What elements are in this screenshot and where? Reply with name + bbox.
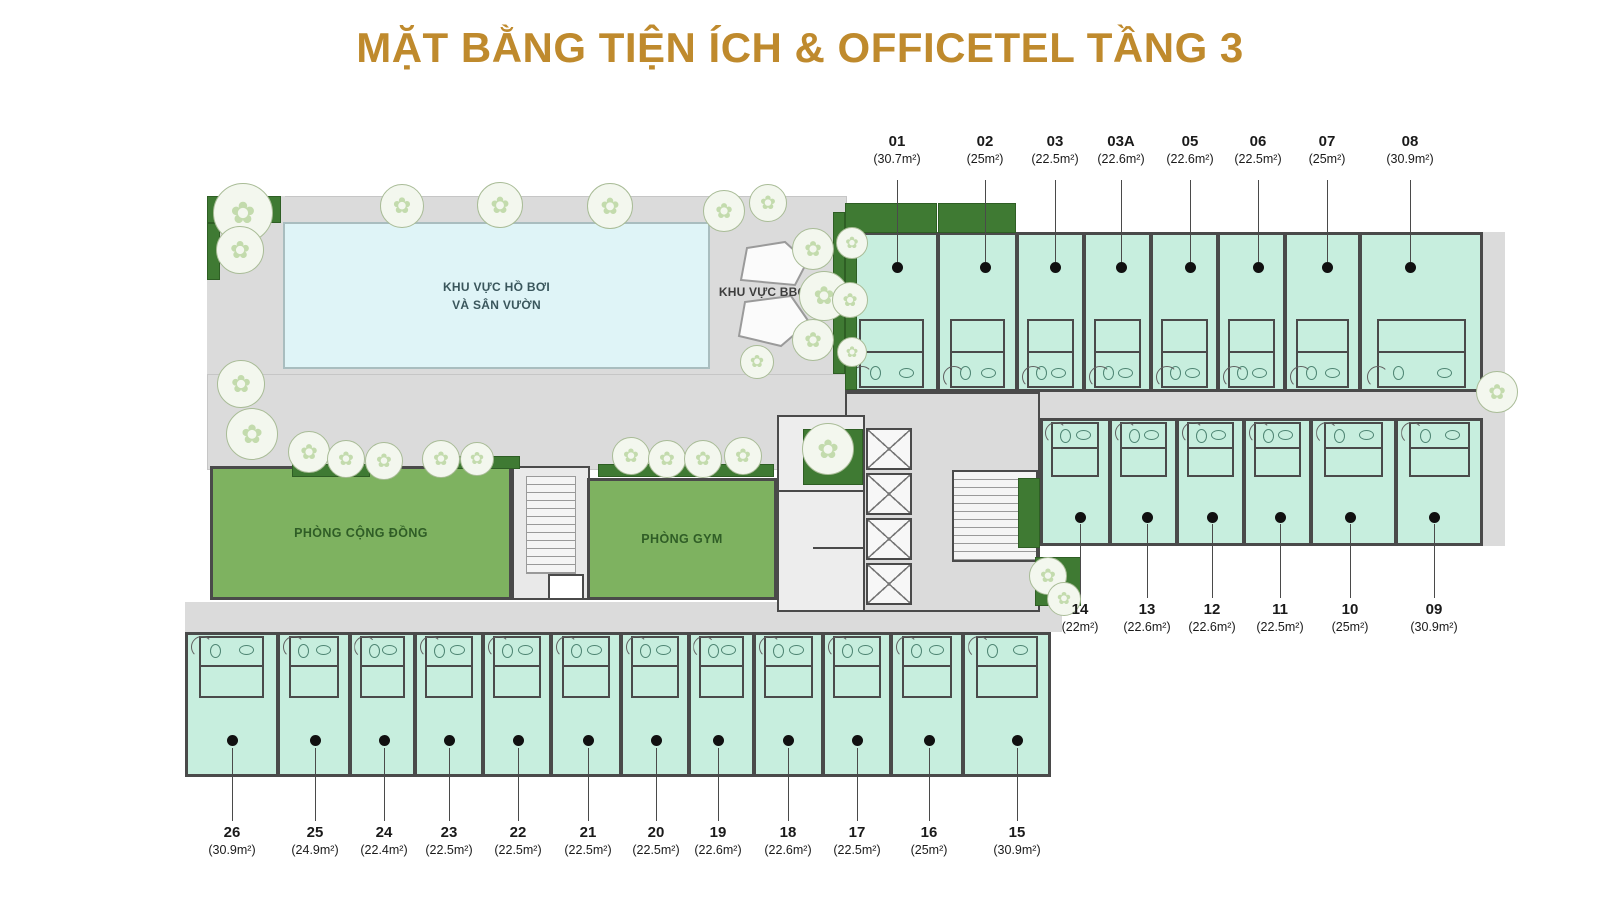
unit-20-bathroom — [631, 636, 678, 698]
toilet-icon — [369, 644, 380, 658]
unit-05-leader-line — [1190, 180, 1191, 262]
unit-area: (25m²) — [1279, 152, 1375, 168]
unit-20-leader-line — [656, 748, 657, 821]
unit-06-bathroom — [1228, 319, 1275, 388]
toilet-icon — [987, 644, 998, 658]
unit-22-leader-line — [518, 748, 519, 821]
unit-07-dot — [1322, 262, 1333, 273]
shaft-box — [548, 574, 584, 600]
toilet-icon — [1196, 429, 1207, 443]
tree-icon: ✿ — [749, 184, 787, 222]
toilet-icon — [960, 366, 971, 380]
wardrobe-divider — [1163, 351, 1206, 353]
unit-06 — [1218, 232, 1285, 392]
elevator-1 — [866, 428, 912, 470]
sink-icon — [1144, 430, 1159, 440]
tree-icon: ✿ — [365, 442, 403, 480]
unit-14-dot — [1075, 512, 1086, 523]
unit-number: 01 — [849, 133, 945, 152]
sink-icon — [1211, 430, 1226, 440]
toilet-icon — [1393, 366, 1404, 380]
unit-03A — [1084, 232, 1151, 392]
unit-16-label: 16(25m²) — [881, 824, 977, 858]
wardrobe-divider — [1053, 447, 1098, 449]
unit-20-dot — [651, 735, 662, 746]
unit-09-dot — [1429, 512, 1440, 523]
tree-icon: ✿ — [836, 227, 868, 259]
unit-26-dot — [227, 735, 238, 746]
unit-22-bathroom — [493, 636, 540, 698]
community-room: PHÒNG CỘNG ĐỒNG — [210, 466, 512, 600]
unit-01-bathroom — [859, 319, 925, 388]
sink-icon — [858, 645, 873, 655]
sink-icon — [1051, 368, 1066, 378]
sink-icon — [450, 645, 465, 655]
unit-12-leader-line — [1212, 524, 1213, 598]
toilet-icon — [870, 366, 881, 380]
sink-icon — [1118, 368, 1133, 378]
unit-05-dot — [1185, 262, 1196, 273]
sink-icon — [1076, 430, 1091, 440]
unit-area: (25m²) — [881, 843, 977, 859]
tree-icon: ✿ — [1476, 371, 1518, 413]
unit-10-label: 10(25m²) — [1302, 601, 1398, 635]
elevator-3 — [866, 518, 912, 560]
toilet-icon — [1334, 429, 1345, 443]
toilet-icon — [1420, 429, 1431, 443]
unit-03A-bathroom — [1094, 319, 1141, 388]
tree-icon: ✿ — [216, 226, 264, 274]
unit-03A-dot — [1116, 262, 1127, 273]
unit-area: (30.7m²) — [849, 152, 945, 168]
sink-icon — [1437, 368, 1452, 378]
unit-01-leader-line — [897, 180, 898, 262]
unit-19-dot — [713, 735, 724, 746]
sink-icon — [1325, 368, 1340, 378]
sink-icon — [789, 645, 804, 655]
unit-number: 09 — [1386, 601, 1482, 620]
unit-12-dot — [1207, 512, 1218, 523]
sink-icon — [899, 368, 914, 378]
unit-26-leader-line — [232, 748, 233, 821]
unit-03-bathroom — [1027, 319, 1074, 388]
floor-plan: MẶT BẰNG TIỆN ÍCH & OFFICETEL TẦNG 3 KHU… — [0, 0, 1600, 900]
unit-12 — [1177, 418, 1244, 546]
unit-11 — [1244, 418, 1311, 546]
unit-20 — [621, 632, 689, 777]
unit-22 — [483, 632, 551, 777]
unit-14 — [1040, 418, 1110, 546]
pool-label-line2: VÀ SÂN VƯỜN — [377, 296, 617, 314]
unit-number: 07 — [1279, 133, 1375, 152]
tree-icon: ✿ — [648, 440, 686, 478]
unit-03 — [1017, 232, 1084, 392]
toilet-icon — [502, 644, 513, 658]
tree-icon: ✿ — [684, 440, 722, 478]
unit-area: (30.9m²) — [1386, 620, 1482, 636]
wardrobe-divider — [427, 665, 470, 667]
unit-area: (30.9m²) — [1362, 152, 1458, 168]
unit-07-leader-line — [1327, 180, 1328, 262]
unit-15-dot — [1012, 735, 1023, 746]
unit-13 — [1110, 418, 1177, 546]
unit-15-label: 15(30.9m²) — [969, 824, 1065, 858]
tree-icon: ✿ — [226, 408, 278, 460]
sink-icon — [981, 368, 996, 378]
unit-22-dot — [513, 735, 524, 746]
unit-17-bathroom — [833, 636, 880, 698]
unit-19-leader-line — [718, 748, 719, 821]
wardrobe-divider — [564, 665, 609, 667]
unit-24 — [350, 632, 415, 777]
wardrobe-divider — [701, 665, 742, 667]
unit-08-bathroom — [1377, 319, 1465, 388]
unit-02-dot — [980, 262, 991, 273]
toilet-icon — [434, 644, 445, 658]
unit-08-dot — [1405, 262, 1416, 273]
unit-21 — [551, 632, 621, 777]
unit-number: 16 — [881, 824, 977, 843]
toilet-icon — [1060, 429, 1071, 443]
wardrobe-divider — [1122, 447, 1165, 449]
wardrobe-divider — [1411, 447, 1468, 449]
tree-icon: ✿ — [380, 184, 424, 228]
tree-icon: ✿ — [587, 183, 633, 229]
sink-icon — [518, 645, 533, 655]
wardrobe-divider — [633, 665, 676, 667]
tree-icon: ✿ — [724, 437, 762, 475]
unit-21-bathroom — [562, 636, 611, 698]
toilet-icon — [571, 644, 582, 658]
unit-25-dot — [310, 735, 321, 746]
unit-09-label: 09(30.9m²) — [1386, 601, 1482, 635]
unit-area: (30.9m²) — [184, 843, 280, 859]
unit-18-leader-line — [788, 748, 789, 821]
unit-16 — [891, 632, 963, 777]
unit-02 — [938, 232, 1017, 392]
unit-24-leader-line — [384, 748, 385, 821]
unit-05 — [1151, 232, 1218, 392]
wardrobe-divider — [861, 351, 923, 353]
pool-label: KHU VỰC HỒ BƠI VÀ SÂN VƯỜN — [377, 278, 617, 314]
unit-03A-leader-line — [1121, 180, 1122, 262]
unit-16-bathroom — [902, 636, 952, 698]
unit-03-leader-line — [1055, 180, 1056, 262]
unit-10 — [1311, 418, 1396, 546]
tree-icon: ✿ — [460, 442, 494, 476]
unit-07-label: 07(25m²) — [1279, 133, 1375, 167]
unit-06-leader-line — [1258, 180, 1259, 262]
tree-icon: ✿ — [832, 282, 868, 318]
toilet-icon — [298, 644, 309, 658]
unit-19 — [689, 632, 754, 777]
toilet-icon — [842, 644, 853, 658]
wardrobe-divider — [1326, 447, 1382, 449]
unit-17-leader-line — [857, 748, 858, 821]
gym-room-label: PHÒNG GYM — [641, 532, 722, 546]
unit-03-dot — [1050, 262, 1061, 273]
sink-icon — [316, 645, 331, 655]
unit-10-bathroom — [1324, 422, 1384, 477]
tree-icon: ✿ — [422, 440, 460, 478]
toilet-icon — [1263, 429, 1274, 443]
unit-07 — [1285, 232, 1360, 392]
wardrobe-divider — [1379, 351, 1463, 353]
tree-icon: ✿ — [837, 337, 867, 367]
unit-07-bathroom — [1296, 319, 1349, 388]
tree-icon: ✿ — [288, 431, 330, 473]
unit-23-leader-line — [449, 748, 450, 821]
wardrobe-divider — [766, 665, 810, 667]
stair-treads — [526, 476, 576, 574]
sink-icon — [1252, 368, 1267, 378]
unit-15 — [963, 632, 1051, 777]
unit-18-dot — [783, 735, 794, 746]
unit-23-dot — [444, 735, 455, 746]
tree-icon: ✿ — [327, 440, 365, 478]
tree-icon: ✿ — [703, 190, 745, 232]
unit-08-leader-line — [1410, 180, 1411, 262]
elevator-4 — [866, 563, 912, 605]
stairwell — [512, 466, 590, 600]
unit-18-bathroom — [764, 636, 812, 698]
unit-16-leader-line — [929, 748, 930, 821]
unit-11-leader-line — [1280, 524, 1281, 598]
unit-number: 10 — [1302, 601, 1398, 620]
unit-15-leader-line — [1017, 748, 1018, 821]
unit-number: 15 — [969, 824, 1065, 843]
unit-25 — [278, 632, 350, 777]
unit-26-label: 26(30.9m²) — [184, 824, 280, 858]
unit-13-dot — [1142, 512, 1153, 523]
unit-26-bathroom — [199, 636, 265, 698]
unit-01-label: 01(30.7m²) — [849, 133, 945, 167]
unit-25-leader-line — [315, 748, 316, 821]
sink-icon — [656, 645, 671, 655]
unit-17-dot — [852, 735, 863, 746]
wardrobe-divider — [835, 665, 878, 667]
tree-icon: ✿ — [740, 345, 774, 379]
wardrobe-divider — [201, 665, 263, 667]
wardrobe-divider — [1298, 351, 1347, 353]
unit-05-bathroom — [1161, 319, 1208, 388]
unit-10-leader-line — [1350, 524, 1351, 598]
tree-icon: ✿ — [612, 437, 650, 475]
planter-strip — [1018, 478, 1040, 548]
unit-14-leader-line — [1080, 524, 1081, 598]
sink-icon — [239, 645, 254, 655]
community-room-label: PHÒNG CỘNG ĐỒNG — [294, 526, 428, 540]
gym-room: PHÒNG GYM — [587, 478, 777, 600]
tree-icon: ✿ — [217, 360, 265, 408]
sink-icon — [1185, 368, 1200, 378]
unit-area: (25m²) — [1302, 620, 1398, 636]
tree-icon: ✿ — [802, 423, 854, 475]
wardrobe-divider — [291, 665, 337, 667]
unit-09 — [1396, 418, 1483, 546]
toilet-icon — [1129, 429, 1140, 443]
unit-area: (30.9m²) — [969, 843, 1065, 859]
unit-15-bathroom — [976, 636, 1038, 698]
wardrobe-divider — [1096, 351, 1139, 353]
wardrobe-divider — [495, 665, 538, 667]
unit-24-dot — [379, 735, 390, 746]
unit-11-dot — [1275, 512, 1286, 523]
wardrobe-divider — [978, 665, 1036, 667]
toilet-icon — [708, 644, 719, 658]
unit-02-leader-line — [985, 180, 986, 262]
sink-icon — [1445, 430, 1460, 440]
unit-02-bathroom — [950, 319, 1006, 388]
wardrobe-divider — [362, 665, 403, 667]
toilet-icon — [773, 644, 784, 658]
toilet-icon — [911, 644, 922, 658]
toilet-icon — [210, 644, 221, 658]
pool-area: KHU VỰC HỒ BƠI VÀ SÂN VƯỜN — [283, 222, 710, 369]
unit-08-label: 08(30.9m²) — [1362, 133, 1458, 167]
unit-09-leader-line — [1434, 524, 1435, 598]
tree-icon: ✿ — [477, 182, 523, 228]
unit-number: 08 — [1362, 133, 1458, 152]
unit-number: 26 — [184, 824, 280, 843]
unit-23-bathroom — [425, 636, 472, 698]
unit-08 — [1360, 232, 1483, 392]
unit-21-dot — [583, 735, 594, 746]
tree-icon: ✿ — [792, 319, 834, 361]
page-title: MẶT BẰNG TIỆN ÍCH & OFFICETEL TẦNG 3 — [0, 24, 1600, 72]
unit-16-dot — [924, 735, 935, 746]
sink-icon — [1278, 430, 1293, 440]
unit-01-dot — [892, 262, 903, 273]
unit-09-bathroom — [1409, 422, 1470, 477]
wardrobe-divider — [904, 665, 950, 667]
unit-25-bathroom — [289, 636, 339, 698]
unit-06-dot — [1253, 262, 1264, 273]
wardrobe-divider — [952, 351, 1004, 353]
sink-icon — [929, 645, 944, 655]
pool-label-line1: KHU VỰC HỒ BƠI — [377, 278, 617, 296]
unit-10-dot — [1345, 512, 1356, 523]
wardrobe-divider — [1256, 447, 1299, 449]
unit-13-leader-line — [1147, 524, 1148, 598]
unit-21-leader-line — [588, 748, 589, 821]
sink-icon — [587, 645, 602, 655]
toilet-icon — [640, 644, 651, 658]
planter-strip — [938, 203, 1016, 233]
elevator-2 — [866, 473, 912, 515]
wardrobe-divider — [1230, 351, 1273, 353]
wardrobe-divider — [1189, 447, 1232, 449]
sink-icon — [1013, 645, 1028, 655]
tree-icon: ✿ — [792, 228, 834, 270]
sink-icon — [382, 645, 397, 655]
sink-icon — [721, 645, 736, 655]
wardrobe-divider — [1029, 351, 1072, 353]
sink-icon — [1359, 430, 1374, 440]
